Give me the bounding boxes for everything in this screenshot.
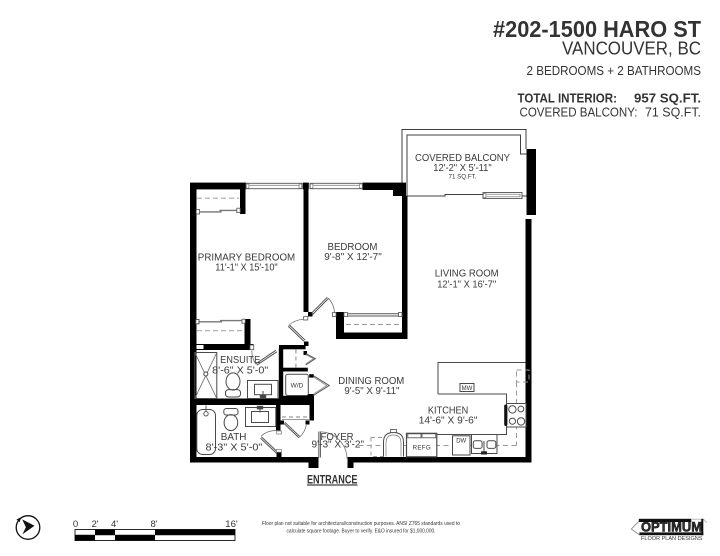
svg-text:9'-5" X 9'-11": 9'-5" X 9'-11" — [344, 385, 399, 397]
svg-text:DW: DW — [456, 439, 466, 445]
svg-text:12'-1" X 16'-7": 12'-1" X 16'-7" — [437, 279, 496, 291]
svg-text:12'-2" X 5'-11": 12'-2" X 5'-11" — [433, 162, 492, 174]
svg-text:Floor plan not suitable for ar: Floor plan not suitable for architectura… — [262, 521, 460, 527]
svg-text:957 SQ.FT.: 957 SQ.FT. — [634, 91, 701, 106]
svg-text:71 SQ.FT.: 71 SQ.FT. — [645, 105, 701, 120]
svg-text:16': 16' — [225, 519, 238, 530]
svg-text:OPTIMUM: OPTIMUM — [641, 520, 702, 535]
svg-text:2': 2' — [91, 519, 98, 530]
svg-text:VANCOUVER, BC: VANCOUVER, BC — [562, 39, 701, 59]
svg-text:FLOOR PLAN DESIGNS: FLOOR PLAN DESIGNS — [641, 536, 703, 542]
svg-text:0: 0 — [73, 519, 78, 530]
svg-text:8'-6" X 5'-0": 8'-6" X 5'-0" — [212, 365, 268, 377]
svg-text:TOTAL INTERIOR:: TOTAL INTERIOR: — [518, 91, 618, 106]
svg-text:4': 4' — [111, 519, 118, 530]
svg-text:9'-3" X 3'-2": 9'-3" X 3'-2" — [312, 439, 365, 451]
svg-text:calculate square footage. Buye: calculate square footage. Buyer to verif… — [287, 528, 436, 534]
svg-text:COVERED BALCONY:: COVERED BALCONY: — [520, 105, 638, 120]
svg-text:2 BEDROOMS + 2 BATHROOMS: 2 BEDROOMS + 2 BATHROOMS — [527, 63, 702, 78]
svg-text:8'-3" X 5'-0": 8'-3" X 5'-0" — [206, 442, 263, 454]
svg-text:MW: MW — [462, 386, 473, 392]
svg-text:W/D: W/D — [291, 383, 304, 390]
svg-text:14'-6" X 9'-6": 14'-6" X 9'-6" — [419, 414, 478, 426]
svg-text:9'-8" X 12'-7": 9'-8" X 12'-7" — [324, 251, 382, 263]
svg-text:REFG: REFG — [413, 445, 431, 452]
svg-text:11'-1" X 15'-10": 11'-1" X 15'-10" — [215, 261, 278, 273]
svg-text:8': 8' — [150, 519, 157, 530]
svg-text:71 SQ.FT.: 71 SQ.FT. — [449, 173, 477, 180]
